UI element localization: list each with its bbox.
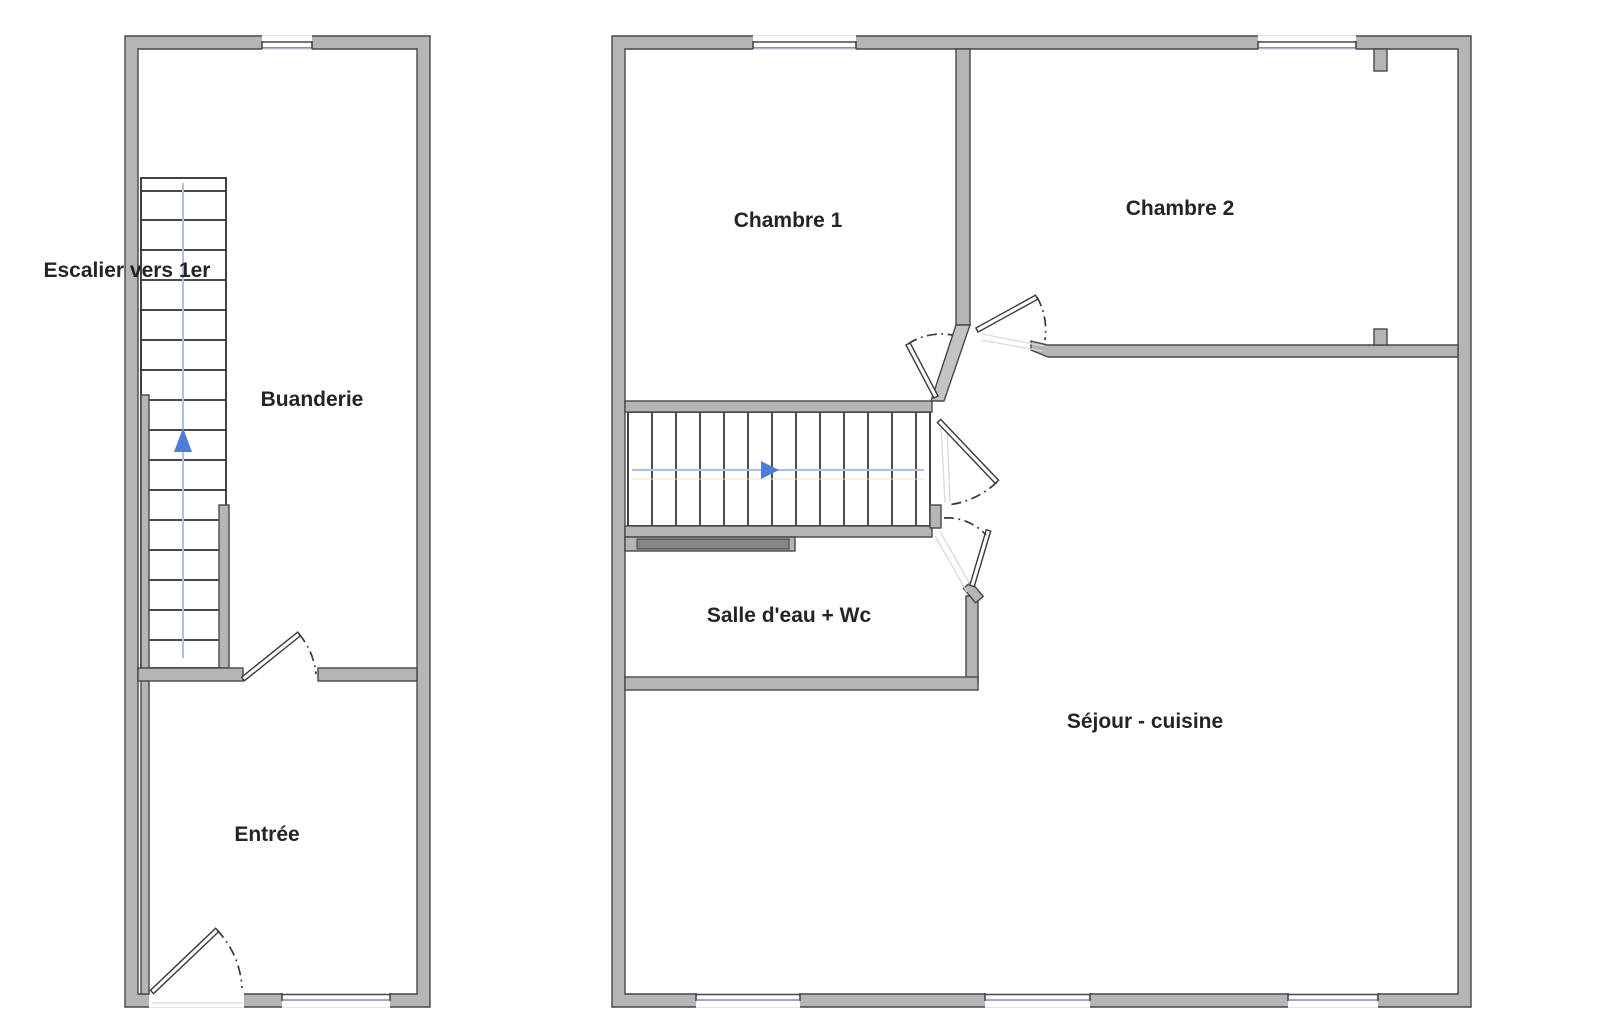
room-label-chambre-1: Chambre 1 bbox=[734, 209, 843, 232]
stairwell-bottom-wall bbox=[625, 526, 932, 537]
stairwell-top-wall bbox=[625, 401, 932, 412]
floorplan-drawing: Escalier vers 1er Buanderie Entrée bbox=[0, 0, 1600, 1031]
entry-door bbox=[150, 928, 242, 993]
window-chambre2-top bbox=[1258, 35, 1356, 49]
room-sejour-cuisine bbox=[625, 357, 1458, 994]
ground-floor-outer-wall bbox=[125, 36, 430, 1007]
room-label-sejour-cuisine: Séjour - cuisine bbox=[1067, 710, 1223, 733]
window-sejour-bottom-3 bbox=[1288, 992, 1378, 1007]
salle-deau-right-wall bbox=[966, 596, 978, 683]
window-chambre1-top bbox=[753, 35, 856, 49]
staircase-first-floor bbox=[628, 412, 930, 526]
landing-door-stub bbox=[930, 505, 941, 528]
buanderie-entree-wall-right bbox=[318, 668, 417, 681]
buanderie-entree-wall-left bbox=[138, 668, 243, 681]
door-salle-deau bbox=[935, 518, 991, 592]
room-label-buanderie: Buanderie bbox=[261, 388, 364, 411]
room-label-escalier: Escalier vers 1er bbox=[44, 259, 211, 282]
first-floor-plan: Chambre 1 Chambre 2 Salle d'eau + Wc Séj… bbox=[612, 35, 1471, 1007]
ground-floor-plan: Escalier vers 1er Buanderie Entrée bbox=[44, 35, 430, 1007]
entry-door-opening bbox=[149, 992, 244, 1007]
window-sejour-bottom-1 bbox=[696, 992, 800, 1007]
stairs-forward-arrow bbox=[761, 461, 779, 479]
door-stairs-landing bbox=[937, 419, 998, 505]
room-label-salle-deau: Salle d'eau + Wc bbox=[707, 604, 872, 627]
stairs-up-arrow bbox=[174, 428, 192, 452]
staircase-ground-floor bbox=[141, 178, 226, 668]
chambre2-top-pier bbox=[1374, 49, 1387, 71]
door-buanderie bbox=[242, 632, 316, 681]
stair-side-wall-right bbox=[219, 505, 229, 668]
understair-low-wall bbox=[637, 539, 789, 549]
window-sejour-bottom-2 bbox=[985, 992, 1090, 1007]
room-buanderie bbox=[226, 49, 417, 668]
chambre2-bottom-wall bbox=[1031, 341, 1458, 357]
chambre-divider-wall bbox=[956, 49, 970, 325]
stair-side-wall-left bbox=[141, 395, 149, 994]
room-label-entree: Entrée bbox=[234, 823, 299, 846]
window-entree-bottom bbox=[282, 992, 390, 1007]
first-floor-outer-wall bbox=[612, 36, 1471, 1007]
chambre2-bottom-pier bbox=[1374, 329, 1387, 345]
window-buanderie-top bbox=[262, 35, 312, 49]
hall-diagonal-wall bbox=[931, 325, 970, 401]
salle-deau-bottom-wall bbox=[625, 677, 978, 690]
room-label-chambre-2: Chambre 2 bbox=[1126, 197, 1235, 220]
floorplan-canvas: Escalier vers 1er Buanderie Entrée bbox=[0, 0, 1600, 1031]
